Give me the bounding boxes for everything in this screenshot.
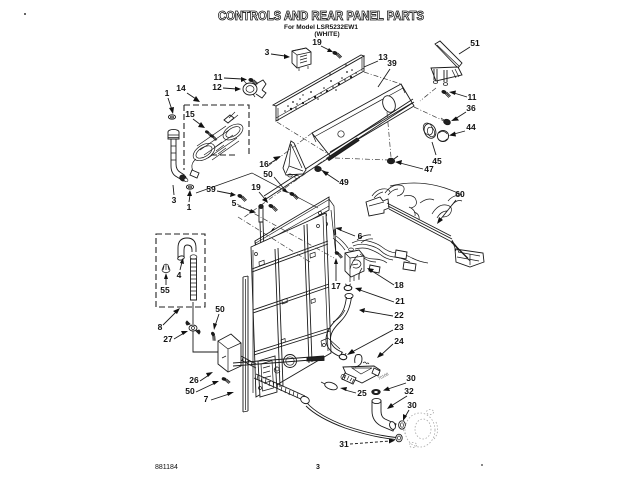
svg-text:36: 36 (466, 103, 476, 113)
svg-text:25: 25 (357, 388, 367, 398)
svg-text:31: 31 (339, 439, 349, 449)
svg-text:50: 50 (185, 386, 195, 396)
svg-text:51: 51 (470, 38, 480, 48)
svg-text:26: 26 (189, 375, 199, 385)
svg-text:6: 6 (358, 231, 363, 241)
svg-text:19: 19 (312, 37, 322, 47)
svg-text:50: 50 (215, 304, 225, 314)
svg-text:3: 3 (316, 464, 320, 471)
svg-text:1: 1 (165, 88, 170, 98)
svg-text:18: 18 (394, 280, 404, 290)
svg-text:5: 5 (232, 198, 237, 208)
svg-text:50: 50 (263, 169, 273, 179)
svg-text:30: 30 (407, 400, 417, 410)
svg-text:39: 39 (387, 58, 397, 68)
svg-text:1: 1 (187, 202, 192, 212)
svg-text:14: 14 (176, 83, 186, 93)
svg-text:3: 3 (172, 195, 177, 205)
svg-text:16: 16 (259, 159, 269, 169)
svg-text:881184: 881184 (155, 464, 178, 471)
svg-text:3: 3 (265, 47, 270, 57)
svg-text:11: 11 (468, 92, 477, 102)
svg-text:22: 22 (394, 310, 404, 320)
svg-text:60: 60 (455, 189, 465, 199)
svg-text:24: 24 (394, 336, 404, 346)
svg-text:4: 4 (177, 270, 182, 280)
svg-text:21: 21 (395, 296, 405, 306)
svg-text:30: 30 (406, 373, 416, 383)
svg-text:8: 8 (158, 322, 163, 332)
svg-text:27: 27 (163, 334, 173, 344)
svg-text:11: 11 (214, 72, 223, 82)
svg-text:CONTROLS AND REAR PANEL PARTS: CONTROLS AND REAR PANEL PARTS (218, 9, 424, 23)
svg-text:55: 55 (160, 285, 170, 295)
svg-text:19: 19 (251, 182, 261, 192)
svg-text:49: 49 (339, 177, 349, 187)
svg-text:17: 17 (331, 281, 341, 291)
svg-text:47: 47 (424, 164, 434, 174)
svg-text:7: 7 (204, 394, 209, 404)
svg-text:23: 23 (394, 322, 404, 332)
svg-text:32: 32 (404, 386, 414, 396)
svg-text:44: 44 (466, 122, 476, 132)
svg-text:15: 15 (185, 109, 195, 119)
svg-text:For Model LSR5232EW1: For Model LSR5232EW1 (284, 24, 358, 31)
svg-text:12: 12 (212, 82, 222, 92)
svg-text:59: 59 (206, 184, 216, 194)
